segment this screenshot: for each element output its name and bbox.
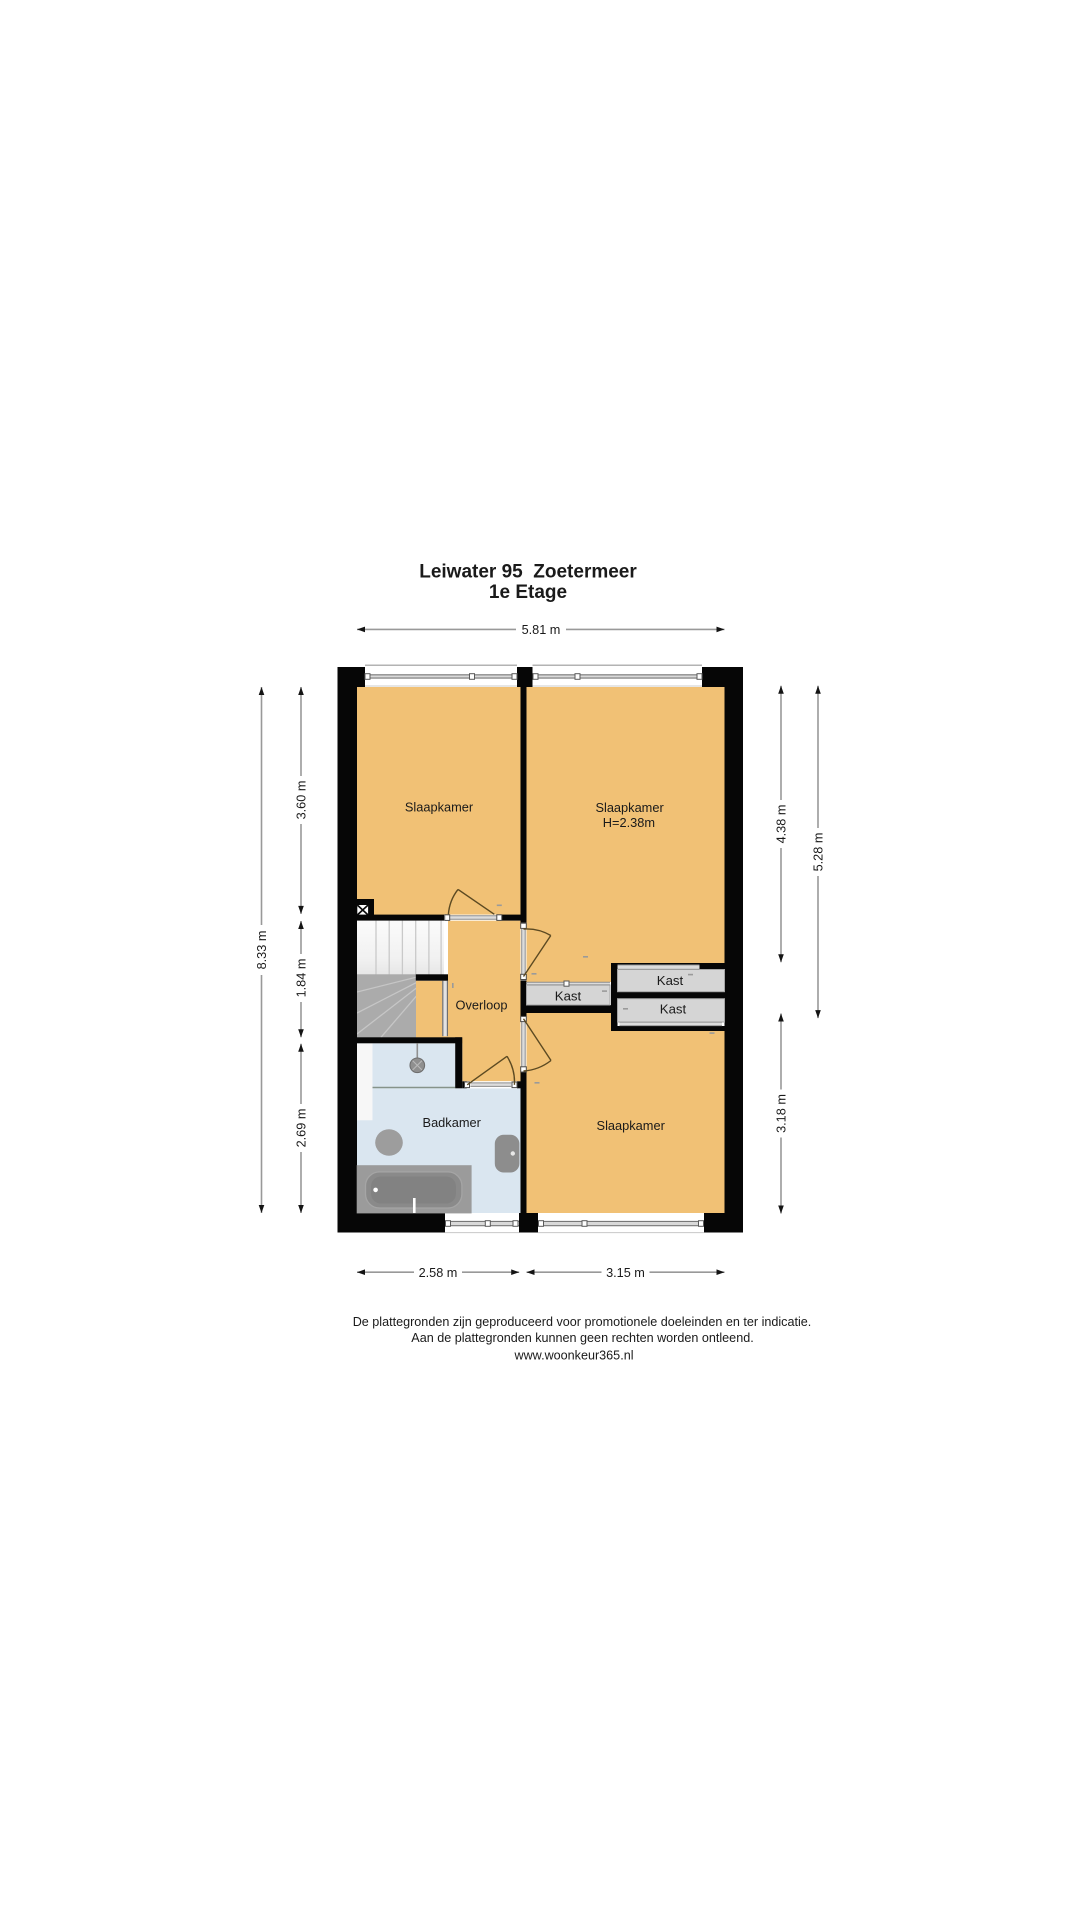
svg-text:4.38 m: 4.38 m [775,805,789,844]
svg-text:www.woonkeur365.nl: www.woonkeur365.nl [513,1348,633,1362]
svg-text:Leiwater 95 Zoetermeer: Leiwater 95 Zoetermeer [419,562,637,583]
svg-text:Slaapkamer: Slaapkamer [405,800,474,815]
svg-text:5.28 m: 5.28 m [812,833,826,872]
svg-text:2.58 m: 2.58 m [419,1266,458,1280]
svg-text:Aan de plattegronden kunnen ge: Aan de plattegronden kunnen geen rechten… [411,1331,753,1345]
svg-text:Badkamer: Badkamer [423,1115,482,1130]
svg-text:Slaapkamer: Slaapkamer [595,800,664,815]
svg-text:Kast: Kast [555,989,582,1004]
svg-text:Kast: Kast [660,1002,687,1017]
svg-text:H=2.38m: H=2.38m [603,815,655,830]
svg-text:Slaapkamer: Slaapkamer [597,1118,666,1133]
svg-text:2.69 m: 2.69 m [295,1109,309,1148]
svg-text:1.84 m: 1.84 m [295,959,309,998]
svg-text:Overloop: Overloop [456,998,508,1013]
svg-text:De plattegronden zijn geproduc: De plattegronden zijn geproduceerd voor … [353,1315,812,1329]
svg-text:5.81 m: 5.81 m [522,623,561,637]
svg-text:3.18 m: 3.18 m [775,1094,789,1133]
svg-text:Kast: Kast [657,973,684,988]
svg-text:3.15 m: 3.15 m [606,1266,645,1280]
svg-text:8.33 m: 8.33 m [255,931,269,970]
svg-text:3.60 m: 3.60 m [295,781,309,820]
svg-text:1e Etage: 1e Etage [489,582,567,603]
